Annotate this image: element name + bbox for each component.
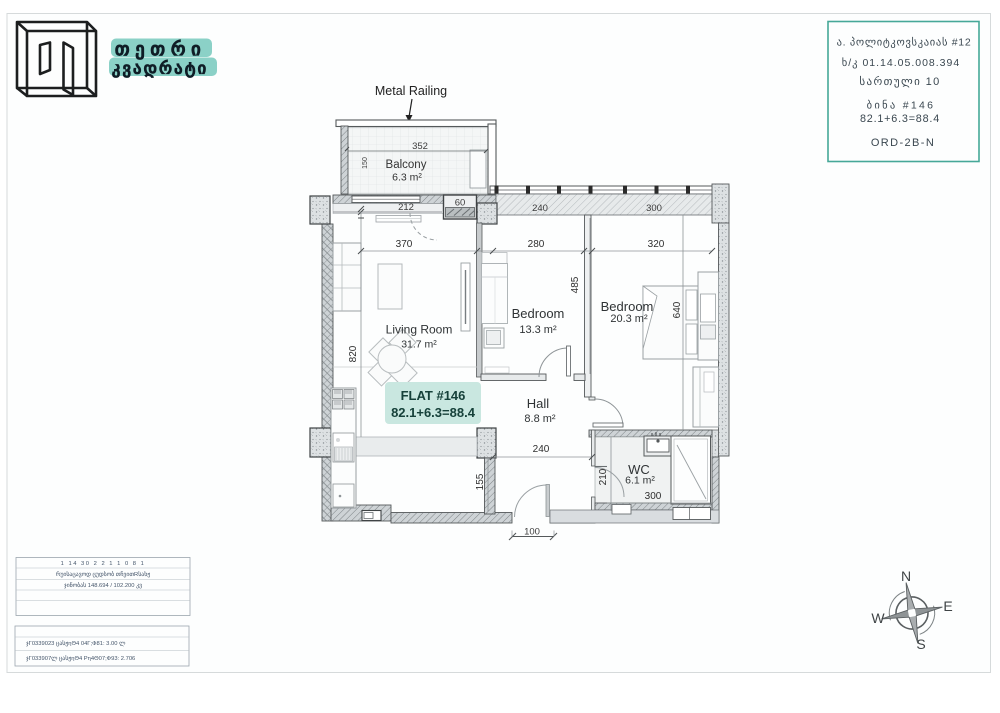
svg-text:150: 150 xyxy=(362,157,369,169)
svg-text:E: E xyxy=(943,598,952,614)
svg-text:Bedroom: Bedroom xyxy=(512,306,565,321)
svg-text:სართული 10: სართული 10 xyxy=(859,75,940,88)
svg-text:280: 280 xyxy=(528,239,545,250)
svg-text:N: N xyxy=(901,568,911,584)
svg-text:Balcony: Balcony xyxy=(386,159,427,171)
svg-text:Hall: Hall xyxy=(527,396,550,411)
svg-text:300: 300 xyxy=(645,491,662,502)
svg-text:352: 352 xyxy=(412,141,428,152)
svg-text:რუისაცავოდ ცუდსობ თჩვითRსახჟ: რუისაცავოდ ცუდსობ თჩვითRსახჟ xyxy=(56,570,151,578)
svg-text:82.1+6.3=88.4: 82.1+6.3=88.4 xyxy=(860,113,940,125)
svg-text:485: 485 xyxy=(570,276,581,293)
svg-text:210: 210 xyxy=(598,468,609,485)
svg-text:8.8 m²: 8.8 m² xyxy=(524,413,556,425)
svg-text:240: 240 xyxy=(532,203,548,214)
svg-text:82.1+6.3=88.4: 82.1+6.3=88.4 xyxy=(391,405,476,420)
svg-text:60: 60 xyxy=(455,198,466,209)
svg-text:კვადრატი: კვადრატი xyxy=(112,60,208,79)
svg-text:100: 100 xyxy=(524,527,540,538)
svg-text:31.7 m²: 31.7 m² xyxy=(401,339,437,351)
svg-text:212: 212 xyxy=(398,202,414,213)
svg-text:Bedroom: Bedroom xyxy=(601,299,654,314)
svg-text:6.3 m²: 6.3 m² xyxy=(392,172,422,184)
svg-text:FLAT #146: FLAT #146 xyxy=(401,388,466,403)
svg-text:820: 820 xyxy=(348,345,359,362)
svg-text:155: 155 xyxy=(475,473,486,490)
svg-text:370: 370 xyxy=(396,239,413,250)
svg-text:თეთრი: თეთრი xyxy=(115,39,207,60)
svg-text:13.3 m²: 13.3 m² xyxy=(519,324,557,336)
svg-text:Metal Railing: Metal Railing xyxy=(375,84,447,98)
svg-text:ORD-2B-N: ORD-2B-N xyxy=(871,137,935,149)
svg-text:W: W xyxy=(871,610,885,626)
svg-text:S: S xyxy=(916,636,925,652)
svg-text:320: 320 xyxy=(648,239,665,250)
svg-text:6.1 m²: 6.1 m² xyxy=(625,475,655,487)
svg-text:ჯინობას 148.694 / 102.200 კვ: ჯინობას 148.694 / 102.200 კვ xyxy=(64,581,142,589)
svg-text:ხ/კ 01.14.05.008.394: ხ/კ 01.14.05.008.394 xyxy=(842,56,960,69)
svg-text:300: 300 xyxy=(646,203,662,214)
svg-text:1 14 30 2 2 1 1 0 8 1: 1 14 30 2 2 1 1 0 8 1 xyxy=(61,561,146,567)
svg-text:ჯΓ0339023 ცასჟηΘ4 04Γ;Ф81: 3.0: ჯΓ0339023 ცასჟηΘ4 04Γ;Ф81: 3.00 ლ xyxy=(26,640,126,647)
svg-text:ბინა #146: ბინა #146 xyxy=(867,99,936,112)
svg-text:ჯΓ033907ლ ცასჟηΘ4 Ρη4Θ07;Ф93:: ჯΓ033907ლ ცასჟηΘ4 Ρη4Θ07;Ф93: 2.706 xyxy=(26,655,135,662)
svg-text:Living Room: Living Room xyxy=(386,323,453,337)
svg-text:ა. პოლიტკოვსკაიას #12: ა. პოლიტკოვსკაიას #12 xyxy=(837,36,972,49)
svg-text:240: 240 xyxy=(533,444,550,455)
svg-text:640: 640 xyxy=(672,301,683,318)
svg-text:20.3 m²: 20.3 m² xyxy=(610,313,648,325)
